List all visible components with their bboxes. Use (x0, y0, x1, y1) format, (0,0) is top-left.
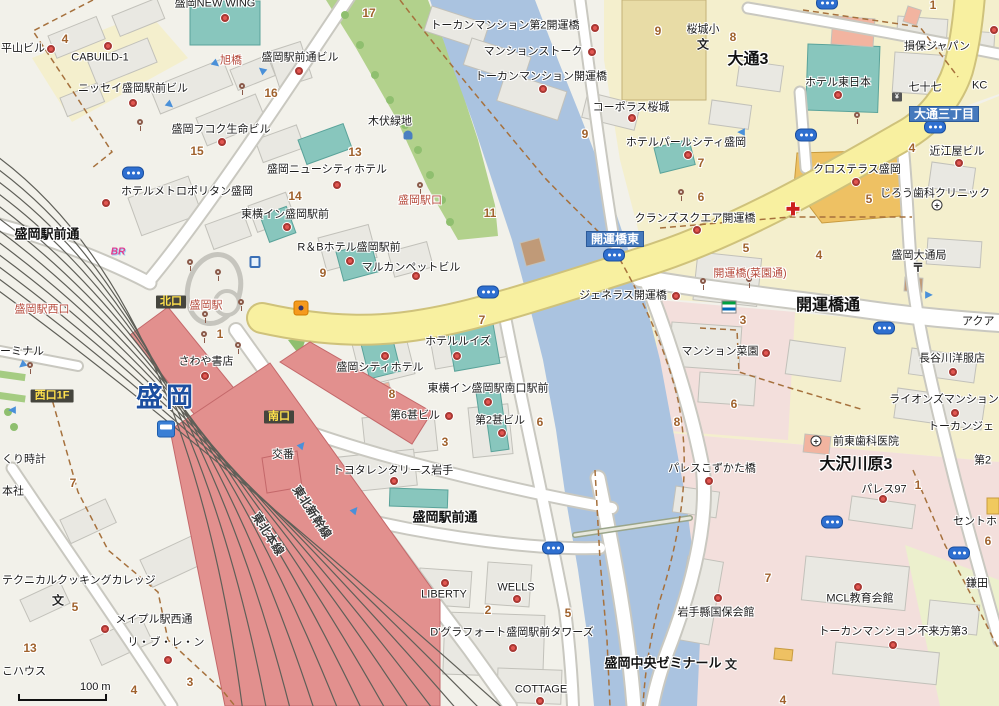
poi-dot (693, 226, 701, 234)
map-label: 第6甚ビル (390, 411, 440, 422)
poi-dot (218, 138, 226, 146)
map-label: 盛岡大通局 (892, 251, 947, 262)
block-number: 1 (930, 0, 937, 11)
map-label: 東北本線 (250, 511, 286, 558)
map-label: 盛岡NEW WING (175, 0, 256, 10)
map-label: 鎌田 (966, 579, 988, 590)
map-label: 大沢川原3 (820, 457, 893, 473)
block-number: 4 (816, 249, 823, 261)
traffic-signal-icon (854, 112, 860, 118)
map-label: クロステラス盛岡 (813, 165, 901, 176)
map-label: トヨタレンタリース岩手 (333, 466, 453, 477)
exit-badge: 大通三丁目 (909, 106, 979, 122)
map-overlay: 盛岡NEW WING平山ビルCABUILD-1ニッセイ盛岡駅前ビル盛岡フコク生命… (0, 0, 999, 706)
map-label: 旭橋 (220, 56, 242, 67)
map-label: 盛岡駅 (190, 301, 223, 312)
traffic-signal-icon (235, 342, 241, 348)
poi-dot (509, 644, 517, 652)
restaurant-poi-icon (294, 301, 309, 316)
poi-dot (441, 579, 449, 587)
map-label: コーポラス桜城 (593, 103, 670, 114)
map-label: KC (972, 81, 987, 92)
map-label: ーミナル (0, 347, 44, 358)
map-label: トーカンマンション開運橋 (475, 72, 607, 83)
oneway-arrow-icon: ▶ (16, 358, 29, 371)
map-label: 盛岡駅口 (398, 196, 442, 207)
map-label: トーカンマンション第2開運橋 (430, 21, 579, 32)
ice-cream-shop-icon: BR (111, 247, 125, 258)
oneway-arrow-icon: ▶ (8, 405, 16, 416)
poi-dot (955, 159, 963, 167)
poi-dot (47, 45, 55, 53)
map-label: マンション菜園 (682, 347, 759, 358)
poi-dot (672, 292, 680, 300)
poi-dot (852, 178, 860, 186)
map-label: パレスこずかた橋 (668, 464, 756, 475)
bus-stop-icon (477, 286, 499, 299)
poi-dot (834, 91, 842, 99)
traffic-signal-icon (417, 182, 423, 188)
block-number: 6 (698, 191, 705, 203)
traffic-signal-icon (239, 83, 245, 89)
block-number: 4 (909, 142, 916, 154)
map-label: 交番 (272, 450, 294, 461)
map-label: マルカンペットビル (362, 263, 461, 274)
map-label: CABUILD-1 (71, 53, 128, 64)
map-label: 盛岡駅前通 (14, 228, 79, 241)
map-label: メイプル駅西通 (116, 615, 193, 626)
map-label: ライオンズマンション (889, 395, 999, 406)
poi-dot (588, 48, 596, 56)
map-label: 第2甚ビル (475, 416, 525, 427)
map-label: 盛岡フコク生命ビル (172, 125, 271, 136)
convenience-store-icon (722, 301, 737, 314)
poi-dot (453, 352, 461, 360)
poi-dot (513, 595, 521, 603)
map-label: 東横イン盛岡駅前 (241, 210, 329, 221)
dental-clinic-icon: + (811, 436, 822, 447)
exit-badge: 開運橋東 (586, 231, 644, 247)
map-label: D'グラフォート盛岡駅前タワーズ (430, 628, 594, 639)
poi-dot (536, 697, 544, 705)
bus-stop-icon (948, 547, 970, 560)
block-number: 7 (70, 477, 77, 489)
map-label: リ・ブ・レ・ン (128, 638, 205, 649)
poi-dot (951, 409, 959, 417)
map-label: 岩手縣国保会館 (678, 608, 755, 619)
poi-dot (102, 199, 110, 207)
map-label: ジェネラス開運橋 (579, 291, 667, 302)
map-canvas[interactable]: 盛岡NEW WING平山ビルCABUILD-1ニッセイ盛岡駅前ビル盛岡フコク生命… (0, 0, 999, 706)
bus-stop-icon (603, 249, 625, 262)
school-icon: 文 (725, 656, 737, 673)
map-label: ホテルパールシティ盛岡 (626, 138, 746, 149)
station-name: 盛岡 (136, 385, 196, 412)
map-label: クランズスクエア開運橋 (635, 214, 756, 225)
map-label: R＆Bホテル盛岡駅前 (297, 243, 400, 254)
block-number: 9 (655, 25, 662, 37)
traffic-signal-icon (700, 278, 706, 284)
block-number: 14 (288, 190, 301, 202)
block-number: 8 (674, 416, 681, 428)
bank-icon: ¥ (892, 93, 902, 102)
block-number: 5 (866, 193, 873, 205)
oneway-arrow-icon: ▶ (348, 504, 361, 517)
bus-stop-icon (795, 129, 817, 142)
map-label: 近江屋ビル (930, 147, 985, 158)
block-number: 7 (765, 572, 772, 584)
block-number: 7 (698, 157, 705, 169)
poi-dot (539, 85, 547, 93)
block-number: 3 (442, 436, 449, 448)
bus-stop-icon (873, 322, 895, 335)
poi-dot (705, 477, 713, 485)
map-label: 七十七 (909, 83, 942, 94)
map-label: 盛岡駅前通ビル (262, 53, 339, 64)
block-number: 7 (479, 314, 486, 326)
bus-stop-icon (122, 167, 144, 180)
poi-dot (949, 368, 957, 376)
block-number: 5 (565, 607, 572, 619)
map-label: 盛岡駅西口 (15, 305, 70, 316)
exit-badge: 北口 (156, 296, 186, 309)
block-number: 5 (743, 242, 750, 254)
poi-dot (445, 412, 453, 420)
block-number: 13 (348, 146, 361, 158)
block-number: 15 (190, 145, 203, 157)
map-label: 東北新幹線 (291, 484, 334, 541)
bus-stop-icon (924, 121, 946, 134)
map-label: さわや書店 (179, 357, 234, 368)
map-label: じろう歯科クリニック (880, 189, 990, 200)
poi-dot (854, 583, 862, 591)
poi-dot (164, 656, 172, 664)
map-label: 平山ビル (1, 44, 45, 55)
map-label: トーカンマンション不来方第3 (818, 627, 967, 638)
map-label: くり時計 (2, 455, 46, 466)
map-label: アクア (962, 317, 994, 328)
poi-dot (295, 67, 303, 75)
scale-label: 100 m (80, 681, 111, 693)
map-label: WELLS (497, 583, 534, 594)
poi-dot (684, 151, 692, 159)
traffic-signal-icon (215, 269, 221, 275)
map-label: パレス97 (861, 485, 906, 496)
block-number: 4 (62, 33, 69, 45)
exit-badge: 南口 (264, 411, 294, 424)
block-number: 6 (731, 398, 738, 410)
oneway-arrow-icon: ▶ (925, 290, 933, 301)
block-number: 9 (320, 267, 327, 279)
bus-stop-icon (542, 542, 564, 555)
block-number: 17 (362, 7, 375, 19)
scale-bar (18, 694, 107, 701)
poi-dot (889, 641, 897, 649)
map-label: ホテル東日本 (805, 78, 871, 89)
poi-dot (484, 398, 492, 406)
block-number: 1 (915, 479, 922, 491)
block-number: 16 (264, 87, 277, 99)
poi-dot (101, 625, 109, 633)
poi-dot (714, 594, 722, 602)
dental-clinic-icon: + (932, 200, 943, 211)
poi-dot (346, 257, 354, 265)
map-label: 盛岡シティホテル (336, 363, 423, 374)
map-label: 前東歯科医院 (833, 437, 899, 448)
map-label: トーカンジェ (928, 422, 994, 433)
traffic-signal-icon (137, 119, 143, 125)
block-number: 13 (23, 642, 36, 654)
block-number: 2 (485, 604, 492, 616)
map-label: 木伏緑地 (368, 117, 412, 128)
poi-dot (129, 99, 137, 107)
map-label: 長谷川洋服店 (919, 354, 985, 365)
hospital-cross-icon: ✚ (786, 200, 800, 220)
map-label: COTTAGE (515, 685, 567, 696)
school-icon: 文 (697, 36, 709, 53)
map-label: ニッセイ盛岡駅前ビル (78, 84, 188, 95)
map-label: 盛岡ニューシティホテル (267, 165, 387, 176)
map-label: 本社 (2, 487, 24, 498)
poi-dot (390, 477, 398, 485)
map-label: 東横イン盛岡駅南口駅前 (428, 384, 549, 395)
block-number: 6 (985, 535, 992, 547)
block-number: 6 (537, 416, 544, 428)
fountain-icon (404, 131, 413, 140)
poi-dot (104, 42, 112, 50)
train-station-icon (157, 421, 175, 438)
map-label: こハウス (2, 667, 46, 678)
map-label: 開運橋(菜園通) (713, 269, 786, 280)
poi-dot (201, 372, 209, 380)
block-number: 8 (730, 31, 737, 43)
traffic-signal-icon (238, 299, 244, 305)
poi-dot (591, 24, 599, 32)
poi-dot (381, 352, 389, 360)
traffic-signal-icon (201, 331, 207, 337)
poi-dot (498, 429, 506, 437)
monument-icon (250, 256, 261, 268)
map-label: 大通3 (728, 52, 769, 68)
map-label: テクニカルクッキングカレッジ (2, 576, 156, 587)
block-number: 1 (217, 328, 224, 340)
map-label: 盛岡中央ゼミナール (604, 657, 721, 670)
bus-stop-icon (821, 516, 843, 529)
map-label: セントホ (953, 517, 997, 528)
poi-dot (333, 181, 341, 189)
map-label: LIBERTY (421, 590, 467, 601)
map-label: MCL教育会館 (826, 594, 893, 605)
poi-dot (762, 349, 770, 357)
block-number: 11 (484, 207, 497, 219)
map-label: 盛岡駅前通 (412, 511, 477, 524)
map-label: 桜城小 (687, 25, 720, 36)
traffic-signal-icon (678, 189, 684, 195)
map-label: 損保ジャパン (904, 42, 970, 53)
poi-dot (283, 223, 291, 231)
block-number: 3 (187, 676, 194, 688)
school-icon: 文 (52, 592, 64, 609)
poi-dot (628, 114, 636, 122)
map-label: 第2 (974, 456, 991, 467)
oneway-arrow-icon: ▶ (295, 439, 308, 452)
poi-dot (990, 26, 998, 34)
traffic-signal-icon (202, 311, 208, 317)
traffic-signal-icon (187, 259, 193, 265)
map-label: 開運橋通 (796, 298, 860, 314)
block-number: 3 (740, 314, 747, 326)
map-label: ホテルメトロポリタン盛岡 (121, 187, 253, 198)
map-label: マンションストーク (484, 47, 583, 58)
block-number: 9 (582, 128, 589, 140)
block-number: 4 (131, 684, 138, 696)
map-label: ホテルルイズ (425, 337, 491, 348)
bus-stop-icon (816, 0, 838, 10)
block-number: 5 (72, 601, 79, 613)
block-number: 4 (780, 694, 787, 706)
exit-badge: 西口1F (31, 390, 74, 403)
block-number: 8 (389, 388, 396, 400)
poi-dot (879, 495, 887, 503)
oneway-arrow-icon: ▶ (164, 98, 177, 111)
oneway-arrow-icon: ▶ (256, 63, 269, 76)
poi-dot (221, 14, 229, 22)
